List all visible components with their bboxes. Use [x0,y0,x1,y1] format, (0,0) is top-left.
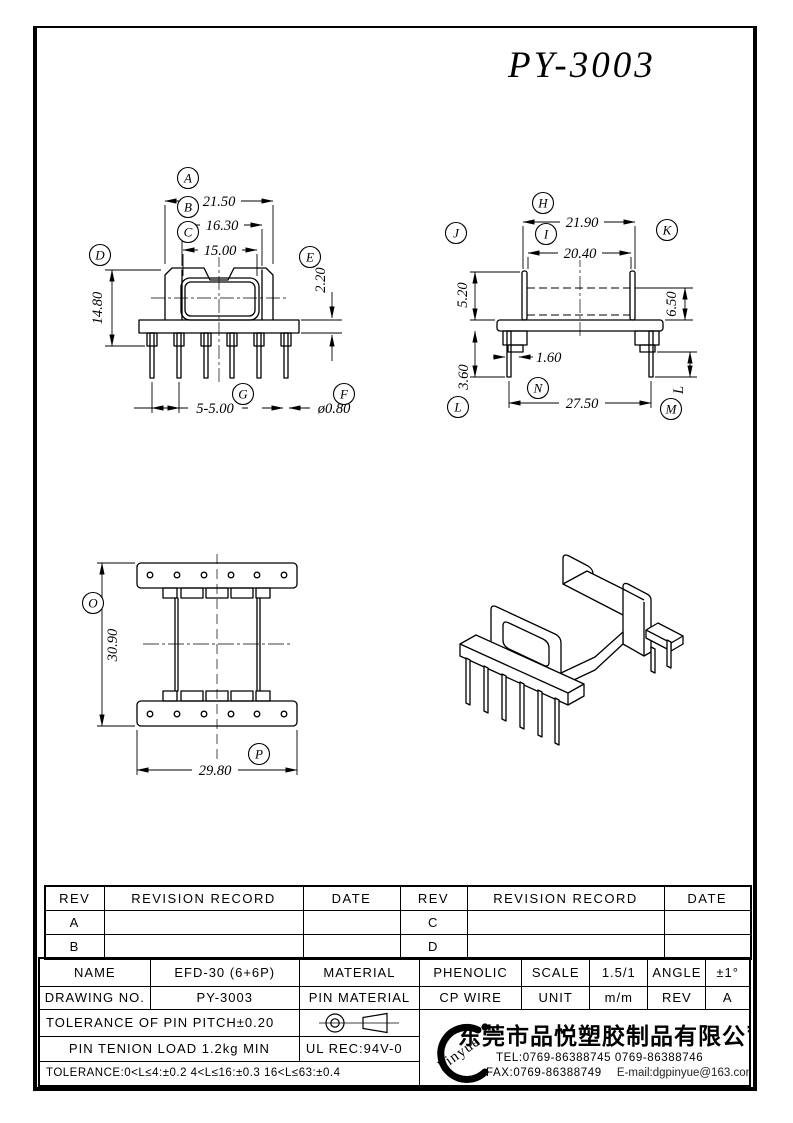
rev-a-record [104,911,303,935]
dim-O: 30.90 O [83,563,136,726]
title-block: NAME EFD-30 (6+6P) MATERIAL PHENOLIC SCA… [38,957,751,1087]
revision-row: A C [45,911,751,935]
dim-p-value: 29.80 [199,763,232,779]
pin-material-label: PIN MATERIAL [299,986,419,1009]
dim-E: 2.20 E [300,247,343,362]
balloon-l: L [453,400,461,415]
drawing-no-label: DRAWING NO. [39,986,150,1009]
balloon-e: E [305,250,314,265]
company-tel: TEL:0769-86388745 0769-86388746 [496,1052,747,1064]
rev-d-record [467,935,664,960]
dim-e-value: 2.20 [313,267,329,293]
angle-label: ANGLE [648,958,706,986]
balloon-k: K [662,223,673,238]
dim-pin-width-value: 1.60 [536,350,562,366]
dim-M: L M [655,352,697,420]
balloon-b: B [184,200,192,215]
revision-row: B D [45,935,751,960]
dim-l-value: 3.60 [456,364,472,391]
company-email: E-mail:dgpinyue@163.com [617,1067,750,1079]
dim-n-value: 27.50 [566,396,599,412]
front-view-body [139,253,299,383]
name-label: NAME [39,958,150,986]
dim-a-value: 21.50 [203,194,236,210]
dim-b-value: 16.30 [206,218,239,234]
dim-k-value: 6.50 [664,291,680,317]
unit-value: m/m [590,986,648,1009]
balloon-a: A [183,171,192,186]
rev-d-cell: D [400,935,467,960]
dim-d-value: 14.80 [90,291,106,324]
rev-c-record [467,911,664,935]
dim-K: 6.50 K [635,220,693,321]
iso-back-pin [651,647,655,673]
sheet-title: PY-3003 [508,44,758,87]
rev-a-date [303,911,400,935]
name-value: EFD-30 (6+6P) [150,958,299,986]
drawing-sheet: PY-3003 21.50 A [0,0,793,1123]
drawing-no-value: PY-3003 [150,986,299,1009]
top-view-body [137,554,297,760]
record-col-header: REVISION RECORD [104,886,303,911]
front-view-drawing: 21.50 A 16.30 B 15.00 C 14.80 D 2.2 [88,158,378,443]
company-name: 东莞市品悦塑胶制品有限公司 [458,1017,747,1051]
material-label: MATERIAL [299,958,419,986]
pinyue-logo-icon: Pinyue [422,1018,498,1087]
dim-h-value: 21.90 [566,215,599,231]
isometric-view-drawing [435,540,715,765]
rev-b-cell: B [45,935,104,960]
balloon-g: G [238,387,248,402]
rev-b-date [303,935,400,960]
dim-o-value: 30.90 [105,628,121,662]
ul-rec: UL REC:94V-0 [299,1036,419,1061]
company-fax: FAX:0769-86388749 [486,1067,602,1079]
dim-J: 5.20 J [446,223,521,321]
rev-a-cell: A [45,911,104,935]
balloon-p: P [254,747,263,762]
balloon-h: H [537,196,548,211]
rev-d-date [664,935,751,960]
iso-right-flange [623,583,651,656]
rev-value: A [706,986,750,1009]
pin-tension-load: PIN TENION LOAD 1.2kg MIN [39,1036,299,1061]
revision-header-row: REV REVISION RECORD DATE REV REVISION RE… [45,886,751,911]
third-angle-projection-icon [311,1010,407,1036]
rev-c-cell: C [400,911,467,935]
unit-label: UNIT [522,986,590,1009]
balloon-f: F [339,387,349,402]
pin-pitch-tolerance: TOLERANCE OF PIN PITCH±0.20 [39,1009,299,1036]
balloon-n: N [533,381,544,396]
dim-i-value: 20.40 [564,246,597,262]
angle-value: ±1° [706,958,750,986]
company-info: Pinyue 东莞市品悦塑胶制品有限公司 TEL:0769-86388745 0… [420,1009,750,1086]
rev-label: REV [648,986,706,1009]
pin-material-value: CP WIRE [420,986,522,1009]
iso-back-pin [667,640,671,668]
top-view-tabs [163,588,270,701]
projection-symbol-cell [299,1009,419,1036]
dim-G: 5-5.00 G [134,382,254,417]
revision-table: REV REVISION RECORD DATE REV REVISION RE… [44,885,752,960]
dim-L: 3.60 L [448,331,506,418]
rev-b-record [104,935,303,960]
balloon-i: I [543,227,549,242]
rev-col-header: REV [45,886,104,911]
dim-D: 14.80 D [90,245,162,347]
scale-value: 1.5/1 [590,958,648,986]
dim-j-value: 5.20 [455,282,471,308]
general-tolerance: TOLERANCE:0<L≤4:±0.2 4<L≤16:±0.3 16<L≤63… [39,1061,420,1086]
top-view-drawing: 30.90 O 29.80 P [75,548,330,788]
dim-pin-width: 1.60 [493,350,562,366]
record-col-header: REVISION RECORD [467,886,664,911]
rev-col-header: REV [400,886,467,911]
dim-N: 27.50 N [509,378,651,413]
rev-c-date [664,911,751,935]
scale-label: SCALE [522,958,590,986]
balloon-d: D [94,248,105,263]
balloon-m: M [665,402,678,417]
dim-g-value: 5-5.00 [196,401,234,417]
date-col-header: DATE [664,886,751,911]
side-view-drawing: 21.90 H 20.40 I 5.20 J 6.50 K 1.60 [435,185,730,430]
date-col-header: DATE [303,886,400,911]
dim-c-value: 15.00 [204,243,237,259]
side-view-body [497,253,663,377]
balloon-o: O [88,596,98,611]
material-value: PHENOLIC [420,958,522,986]
balloon-c: C [184,225,193,240]
dim-F: ø0.80 F [262,384,355,418]
dim-m-value: L [671,386,687,395]
company-fax-email: FAX:0769-86388749 E-mail:dgpinyue@163.co… [486,1067,747,1079]
